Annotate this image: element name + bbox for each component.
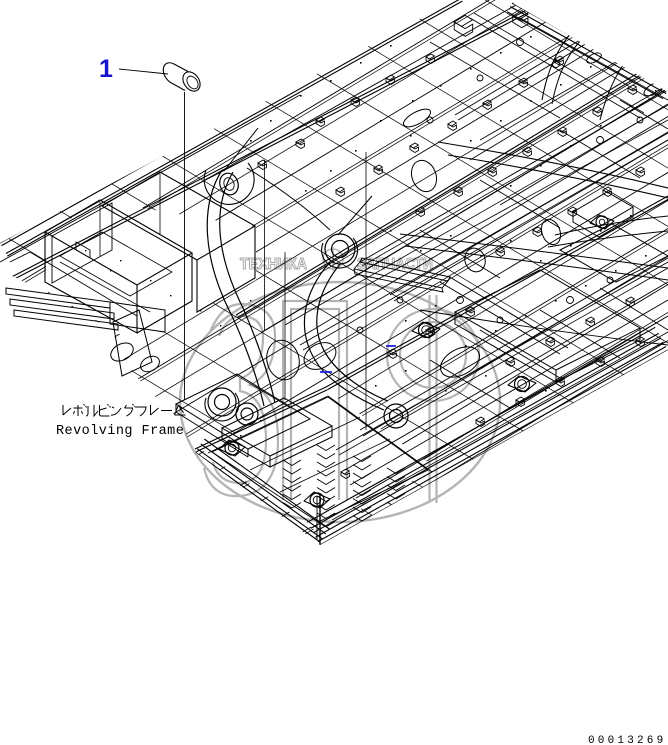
svg-text:00013269: 00013269 (588, 735, 666, 745)
svg-text:1: 1 (99, 55, 113, 83)
svg-text:Revolving Frame: Revolving Frame (56, 424, 184, 439)
svg-text:ТЕХНИКА: ТЕХНИКА (240, 256, 307, 273)
